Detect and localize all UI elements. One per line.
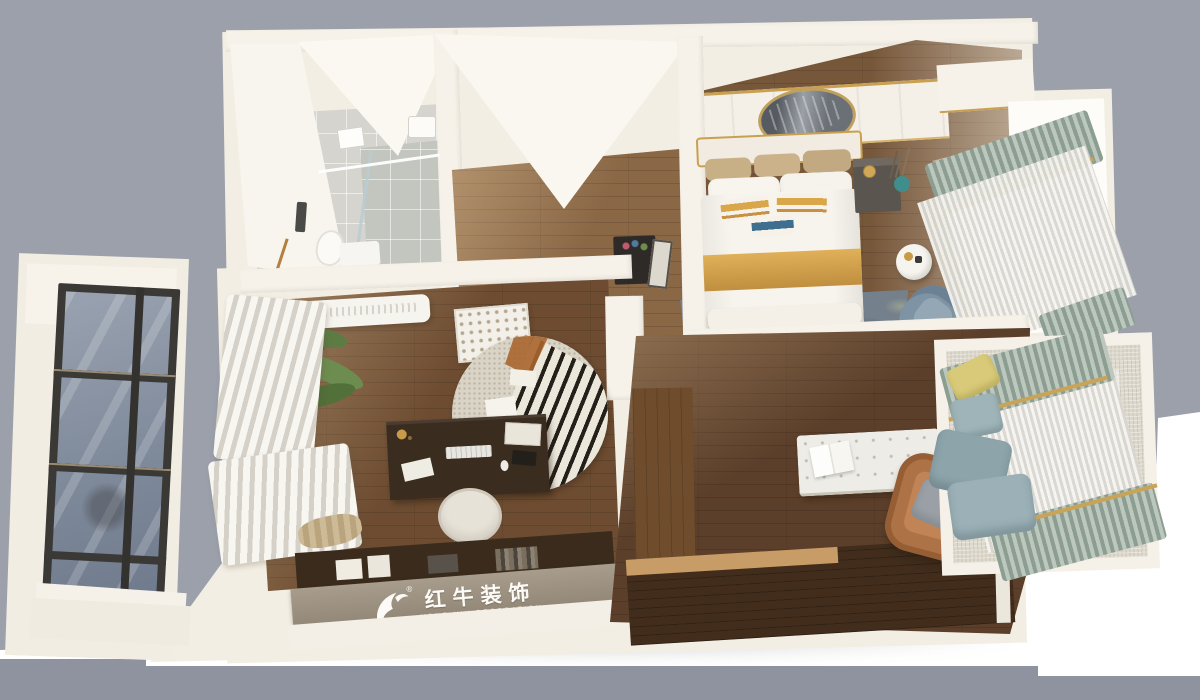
open-book (809, 440, 854, 477)
living-bay-window (934, 332, 1160, 575)
blue-stripe-pillow (751, 215, 794, 238)
balcony-window (42, 283, 181, 609)
cabinet-column (632, 387, 695, 573)
round-side-table (896, 244, 932, 280)
gold-clock (864, 166, 875, 177)
gold-bed-runner (703, 249, 862, 292)
desk-keyboard (445, 445, 492, 459)
table-dark-item (915, 256, 922, 263)
stacked-curtains-upper (213, 294, 327, 467)
gold-stripe-pillow (777, 193, 827, 215)
shelf-white-box (335, 559, 362, 581)
desk-notebook (512, 450, 537, 466)
desk-mouse (500, 460, 509, 471)
shelf-white-box (367, 555, 390, 578)
desk-paper (401, 458, 434, 482)
water-heater (408, 116, 436, 138)
registered-mark: ® (406, 585, 413, 593)
table-gold-dish (904, 252, 913, 261)
desk-lamp (396, 429, 407, 440)
console-flowers (620, 238, 650, 254)
office-chair (434, 486, 500, 546)
floorplan-render-scene: ® 红牛装饰 HONG NIU DECORATION (0, 0, 1200, 700)
stacked-curtains-lower (207, 443, 362, 567)
shelf-gray-box (427, 554, 458, 574)
teal-vase (894, 176, 910, 192)
desk-paper (504, 422, 541, 446)
tan-pillow (802, 149, 851, 173)
bay-blue-pillow-large (946, 472, 1037, 541)
rug-paper-sheet (509, 369, 536, 387)
shelf-books (495, 546, 538, 571)
rain-shower-head (337, 126, 366, 149)
balcony-base (29, 598, 191, 646)
towel-rack (295, 202, 307, 233)
double-bed (696, 131, 866, 334)
